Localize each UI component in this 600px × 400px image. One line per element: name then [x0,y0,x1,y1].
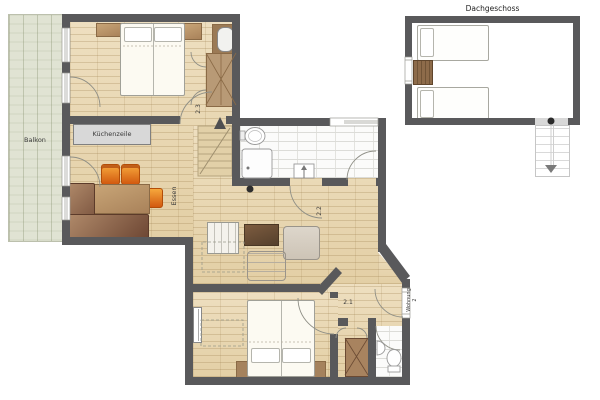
attic-single-bed-top [417,25,489,61]
attic-stair-landing [535,118,568,125]
pillow [420,90,434,118]
attic-dresser [413,60,433,85]
attic-title: Dachgeschoss [405,4,580,13]
bathroom1-floor [240,126,378,178]
radiator [193,307,202,343]
dining-table [93,184,150,214]
balcony-label: Balkon [8,137,62,144]
dining-chair [101,164,120,185]
room-2-1-label: 2.1 [338,300,358,307]
dining-label: Essen [171,181,181,211]
coffee-table [244,224,279,246]
sofa [247,251,286,281]
nightstand-right [183,23,202,40]
pillow [251,348,280,363]
stair-newel-post [548,118,555,125]
pillow [282,348,311,363]
double-bed-room21 [247,300,315,377]
wardrobe-hall [345,338,370,377]
apartment-label: Wohnung 2 [407,285,419,315]
room-2-2-label: 2.2 [317,203,325,219]
tv-sideboard [207,222,239,254]
apartment-label-number: 2 [412,298,418,301]
attic-single-bed-bottom [417,87,489,122]
kitchen-unit: Küchenzeile [73,124,151,145]
pillow [124,27,152,42]
double-bed-room23 [120,23,185,96]
corner-sofa-horizontal [66,214,149,239]
boiler-cabinet [212,24,238,54]
attic-staircase [535,125,570,177]
dining-chair [121,164,140,185]
armchair [283,226,320,260]
pillow [420,28,434,57]
kitchen-unit-label: Küchenzeile [93,131,132,138]
boiler-cylinder [217,27,234,52]
balcony-deck [8,14,64,242]
pillow [154,27,182,42]
floor-plan: Küchenzeile [0,0,600,400]
wardrobe-room23 [206,53,238,107]
hall-corner-floor [378,248,404,284]
room-2-3-label: 2.3 [196,101,204,117]
bathroom2-floor [370,326,402,377]
nightstand-left [96,23,122,37]
